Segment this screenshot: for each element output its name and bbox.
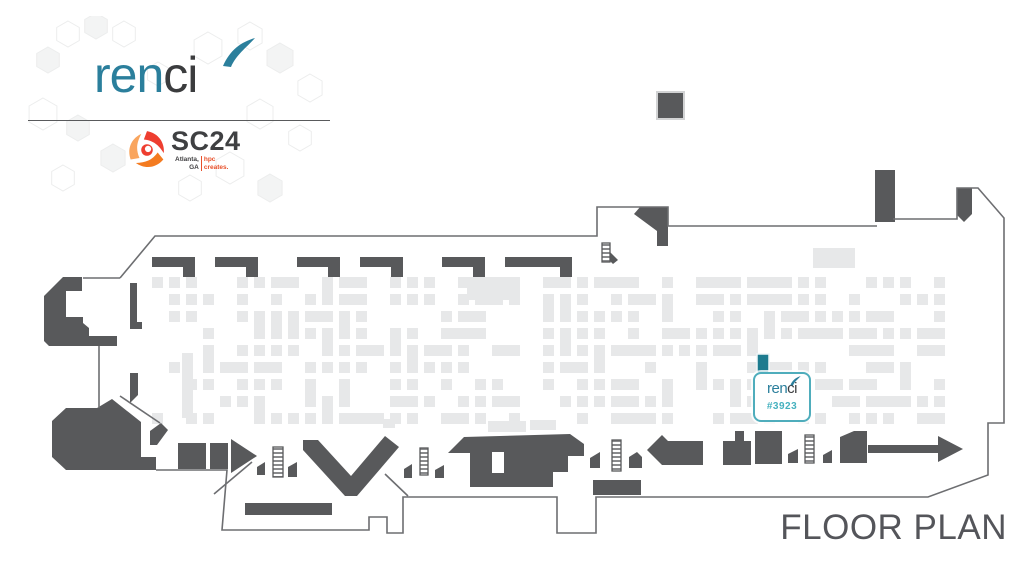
meeting-room-block	[657, 92, 684, 119]
renci-mini-logo: renci	[767, 381, 797, 396]
sc24-tagline-state: GA	[175, 164, 199, 172]
floor-plan-page: renci SC24 Atlanta, GA	[0, 0, 1024, 578]
bottom-entrance-bar	[245, 503, 332, 515]
renci-accent-icon	[222, 38, 256, 68]
sc24-tagline-bar	[201, 156, 202, 171]
renci-logo: renci	[94, 50, 197, 100]
sc24-swirl-icon	[126, 128, 168, 172]
renci-logo-teal-part: ren	[94, 47, 163, 103]
sc24-tagline: Atlanta, GA hpc creates.	[175, 156, 241, 171]
v-corridor-structure	[303, 436, 399, 496]
renci-booth-marker[interactable]	[757, 354, 769, 373]
sc24-title: SC24	[171, 128, 241, 155]
sc24-logo: SC24 Atlanta, GA hpc creates.	[126, 128, 241, 172]
floor-plan-title: FLOOR PLAN	[780, 508, 1007, 548]
top-entrance-tab	[152, 257, 195, 277]
booth-number: #3923	[755, 401, 809, 412]
renci-mini-accent-icon	[790, 376, 801, 386]
central-service-structure	[448, 434, 584, 487]
renci-logo-dark-part: ci	[163, 47, 197, 103]
branding-block: renci SC24 Atlanta, GA	[8, 16, 358, 216]
left-entrance-structure	[44, 277, 117, 346]
branding-divider	[28, 120, 330, 121]
sc24-tagline-hpc: hpc	[204, 156, 229, 164]
exit-arrow-structure	[868, 436, 963, 462]
sc24-tagline-creates: creates.	[204, 164, 229, 172]
hexagon-pattern	[8, 16, 358, 216]
sc24-tagline-city: Atlanta,	[175, 156, 199, 164]
booth-grid	[152, 248, 945, 432]
renci-booth-callout[interactable]: renci #3923	[753, 372, 811, 422]
top-right-pillar	[875, 170, 895, 222]
top-vestibule-structure	[634, 207, 668, 246]
